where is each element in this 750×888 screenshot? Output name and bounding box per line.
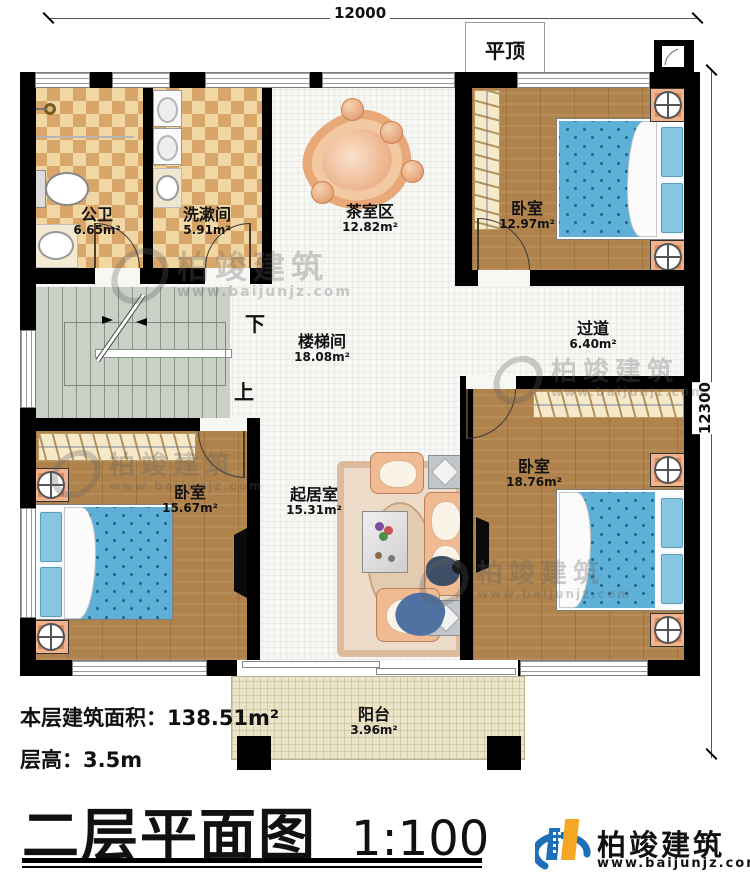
room-name: 过道	[569, 320, 616, 338]
balcony-column-right	[487, 736, 521, 770]
bed-top-right	[556, 118, 686, 240]
stair-arrow-right	[136, 318, 147, 326]
brand-logo-icon	[535, 812, 593, 878]
nightstand-tr-1	[650, 88, 686, 122]
window-bottom-bedroom-br	[520, 660, 648, 676]
room-label-bedroom-top-right: 卧室 12.97m²	[499, 200, 555, 231]
floor-height-label: 层高：	[20, 748, 83, 772]
door-gap-bedroom-tr	[478, 270, 530, 286]
window-bottom-bedroom-bl	[72, 660, 207, 676]
floor-area-value: 138.51m²	[167, 706, 279, 730]
balcony-sliding-door-panel-2	[376, 668, 516, 675]
bed-top-right-pillow-2	[659, 181, 685, 235]
tea-stool-4	[311, 181, 334, 204]
door-leaf-washroom	[249, 223, 251, 268]
tea-stool-1	[341, 98, 364, 121]
tv-bottom-left-bedroom	[234, 528, 247, 598]
room-label-hallway: 过道 6.40m²	[569, 320, 616, 351]
room-label-tea-area: 茶室区 12.82m²	[342, 203, 398, 234]
floor-height-text: 层高：3.5m	[20, 744, 142, 774]
room-name: 卧室	[499, 200, 555, 218]
side-stool-top-right	[428, 455, 462, 489]
coffee-table	[362, 511, 408, 573]
wardrobe-bottom-left-bedroom	[38, 433, 196, 461]
sofa-single-top	[370, 452, 424, 494]
nightstand-bl-1	[33, 468, 69, 502]
bed-bottom-right-pillow-2	[659, 552, 685, 606]
nightstand-bl-2	[33, 620, 69, 654]
room-area: 12.82m²	[342, 221, 398, 234]
bed-bottom-right	[556, 489, 686, 611]
lamp-icon	[37, 623, 65, 651]
room-name: 洗漱间	[183, 206, 231, 224]
window-top-4	[322, 72, 455, 88]
room-name: 楼梯间	[294, 333, 350, 351]
wall-right	[684, 72, 700, 676]
door-gap-bedroom-bl	[200, 418, 247, 431]
lamp-icon	[37, 471, 65, 499]
room-label-stair-hall: 楼梯间 18.08m²	[294, 333, 350, 364]
top-dimension-label: 12000	[330, 4, 390, 22]
brand-website: www.baijunjz.com	[597, 856, 750, 871]
nightstand-br-1	[650, 453, 686, 487]
window-left-stairs	[20, 330, 36, 408]
door-gap-bedroom-br	[466, 376, 516, 389]
door-gap-washroom	[205, 268, 250, 284]
shower-partition-line	[34, 136, 134, 138]
balcony-column-left	[237, 736, 271, 770]
lamp-icon	[654, 243, 682, 271]
wash-sink-bowl	[156, 175, 179, 201]
wardrobe-top-right-bedroom	[474, 90, 500, 230]
tv-bottom-right-bedroom	[476, 517, 489, 573]
door-gap-bathroom	[95, 268, 140, 284]
bed-bottom-right-pillow-1	[659, 496, 685, 550]
tea-stool-3	[401, 160, 424, 183]
room-label-balcony: 阳台 3.96m²	[350, 706, 397, 737]
title-underline-thick	[22, 858, 482, 863]
room-label-washroom: 洗漱间 5.91m²	[183, 206, 231, 237]
room-name: 起居室	[286, 486, 342, 504]
floor-height-value: 3.5m	[83, 748, 142, 772]
tea-stool-2	[380, 121, 403, 144]
bed-top-right-sheet	[627, 121, 657, 237]
title-underline-thin	[22, 866, 482, 868]
floor-area-label: 本层建筑面积：	[20, 706, 167, 730]
nightstand-br-2	[650, 613, 686, 647]
door-leaf-bedroom-br	[466, 389, 468, 439]
stair-inner-rail	[64, 322, 226, 386]
room-area: 18.76m²	[506, 476, 562, 489]
bed-bottom-left-pillow-2	[38, 565, 64, 619]
lamp-icon	[654, 456, 682, 484]
bath-sink-bowl	[38, 231, 74, 260]
sofa-cushion	[431, 501, 461, 541]
window-top-3	[205, 72, 310, 88]
washing-machine-2-drum	[157, 135, 178, 161]
wardrobe-bottom-right-bedroom	[533, 391, 684, 418]
window-top-1	[35, 72, 90, 88]
room-area: 3.96m²	[350, 724, 397, 737]
stair-down-label: 下	[245, 308, 265, 337]
wall-bath-divider	[143, 88, 153, 268]
bed-bottom-left-pillow-1	[38, 510, 64, 564]
flat-roof-label: 平顶	[485, 35, 525, 64]
lamp-icon	[654, 91, 682, 119]
room-area: 6.65m²	[73, 224, 120, 237]
window-top-2	[112, 72, 170, 88]
window-left-bedroom-bl	[20, 508, 36, 618]
flower-decor	[375, 522, 384, 531]
bed-bottom-left	[33, 504, 173, 620]
washing-machine-1-drum	[157, 97, 178, 123]
room-area: 5.91m²	[183, 224, 231, 237]
room-name: 茶室区	[342, 203, 398, 221]
stool-pattern	[431, 458, 459, 486]
stair-arrow-left	[102, 316, 113, 324]
room-label-bedroom-bottom-right: 卧室 18.76m²	[506, 458, 562, 489]
stair-up-label: 上	[234, 376, 254, 405]
table-item	[375, 552, 382, 559]
chimney-flue	[662, 46, 684, 67]
room-name: 卧室	[162, 484, 218, 502]
balcony-sliding-door-panel-1	[242, 661, 380, 668]
room-label-living-room: 起居室 15.31m²	[286, 486, 342, 517]
flat-roof-label-box: 平顶	[465, 22, 545, 76]
flower-decor	[379, 532, 388, 541]
wall-washroom-divider	[262, 88, 272, 268]
room-label-bedroom-bottom-left: 卧室 15.67m²	[162, 484, 218, 515]
lamp-icon	[654, 616, 682, 644]
room-name: 公卫	[73, 206, 120, 224]
wall-bedroom-bl-living-divider	[247, 431, 260, 660]
room-name: 卧室	[506, 458, 562, 476]
floorplan-canvas: 12000 12300 平顶 下 上	[0, 0, 750, 888]
room-name: 阳台	[350, 706, 397, 724]
nightstand-tr-2	[650, 240, 686, 274]
sofa-cushion	[379, 460, 417, 488]
wall-tea-bedroom-divider	[455, 88, 472, 286]
window-top-5	[517, 72, 650, 88]
room-area: 12.97m²	[499, 218, 555, 231]
right-dimension-label: 12300	[692, 382, 718, 434]
room-area: 15.67m²	[162, 502, 218, 515]
room-area: 15.31m²	[286, 504, 342, 517]
room-area: 6.40m²	[569, 338, 616, 351]
room-area: 18.08m²	[294, 351, 350, 364]
bed-top-right-pillow-1	[659, 125, 685, 179]
door-leaf-bedroom-bl	[243, 431, 245, 478]
toilet-bowl	[45, 172, 89, 206]
door-leaf-bedroom-tr	[477, 218, 479, 270]
table-item	[388, 555, 395, 562]
floor-area-text: 本层建筑面积：138.51m²	[20, 702, 279, 732]
room-label-public-bathroom: 公卫 6.65m²	[73, 206, 120, 237]
